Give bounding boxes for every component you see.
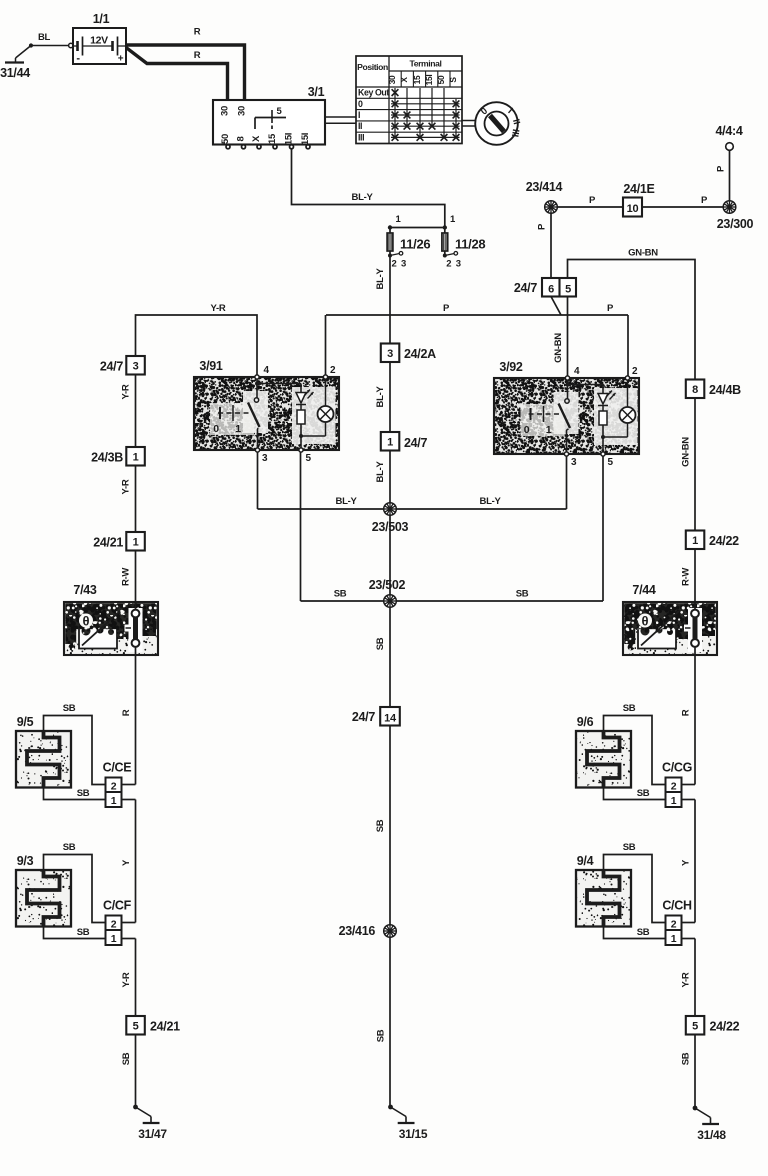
- svg-text:3: 3: [571, 457, 577, 468]
- svg-text:C/CG: C/CG: [662, 761, 692, 775]
- svg-text:2: 2: [392, 259, 397, 270]
- svg-text:SB: SB: [376, 1029, 387, 1042]
- svg-text:BL-Y: BL-Y: [336, 496, 358, 507]
- svg-text:SB: SB: [334, 589, 347, 600]
- svg-text:X: X: [251, 135, 262, 142]
- svg-text:SB: SB: [77, 927, 90, 938]
- svg-text:1: 1: [111, 933, 117, 945]
- svg-text:15: 15: [267, 133, 278, 144]
- svg-text:R: R: [121, 709, 132, 716]
- svg-text:Y-R: Y-R: [121, 384, 132, 399]
- svg-text:2: 2: [671, 780, 677, 792]
- svg-text:P: P: [716, 165, 727, 172]
- svg-text:5: 5: [306, 453, 312, 464]
- svg-text:S: S: [448, 77, 458, 83]
- svg-text:50: 50: [436, 75, 446, 84]
- svg-text:30: 30: [220, 106, 231, 116]
- svg-text:1: 1: [111, 795, 117, 807]
- svg-text:30: 30: [237, 106, 248, 116]
- svg-text:23/414: 23/414: [526, 180, 563, 194]
- svg-text:Y-R: Y-R: [121, 479, 132, 494]
- svg-text:14: 14: [384, 713, 397, 725]
- svg-text:24/1E: 24/1E: [623, 182, 654, 196]
- svg-text:24/7: 24/7: [404, 436, 427, 450]
- svg-text:24/7: 24/7: [100, 360, 123, 374]
- svg-text:2: 2: [671, 918, 677, 930]
- svg-text:24/7: 24/7: [352, 710, 375, 724]
- svg-text:9/4: 9/4: [577, 854, 594, 868]
- svg-text:15I: 15I: [424, 75, 434, 86]
- svg-text:GN-BN: GN-BN: [553, 333, 564, 363]
- svg-text:SB: SB: [623, 703, 636, 714]
- svg-text:GN-BN: GN-BN: [681, 437, 692, 467]
- svg-text:SB: SB: [63, 842, 76, 853]
- svg-text:Y-R: Y-R: [211, 303, 226, 314]
- svg-text:BL-Y: BL-Y: [375, 386, 386, 408]
- svg-text:23/416: 23/416: [339, 924, 376, 938]
- svg-text:P: P: [589, 195, 596, 206]
- svg-text:15I: 15I: [284, 133, 295, 145]
- svg-text:1: 1: [671, 933, 677, 945]
- svg-text:θ: θ: [82, 614, 89, 629]
- svg-text:Y: Y: [681, 859, 692, 866]
- svg-text:II: II: [358, 121, 362, 131]
- svg-text:C/CF: C/CF: [103, 899, 132, 913]
- svg-text:24/2A: 24/2A: [404, 347, 436, 361]
- svg-text:R-W: R-W: [121, 568, 132, 586]
- svg-text:9/3: 9/3: [17, 854, 34, 868]
- svg-text:3/1: 3/1: [308, 85, 325, 99]
- svg-text:2: 2: [330, 365, 336, 376]
- svg-text:0: 0: [213, 423, 219, 435]
- svg-text:3: 3: [262, 453, 268, 464]
- svg-text:1: 1: [133, 451, 139, 463]
- svg-text:3: 3: [401, 259, 406, 270]
- svg-text:2: 2: [111, 780, 117, 792]
- svg-text:15: 15: [412, 75, 422, 84]
- svg-text:BL-Y: BL-Y: [375, 268, 386, 290]
- svg-text:1: 1: [387, 436, 393, 448]
- svg-text:P: P: [607, 303, 614, 314]
- svg-text:2: 2: [632, 366, 638, 377]
- svg-text:9/5: 9/5: [17, 715, 34, 729]
- svg-text:24/3B: 24/3B: [91, 451, 123, 465]
- svg-text:7/44: 7/44: [632, 583, 655, 597]
- svg-text:6: 6: [548, 284, 554, 296]
- svg-text:BL-Y: BL-Y: [352, 192, 374, 203]
- svg-text:BL-Y: BL-Y: [375, 461, 386, 483]
- svg-text:4: 4: [264, 365, 270, 376]
- svg-text:3/92: 3/92: [499, 360, 522, 374]
- svg-text:R: R: [194, 50, 201, 61]
- svg-text:3/91: 3/91: [199, 359, 222, 373]
- svg-text:BL: BL: [38, 32, 51, 43]
- svg-text:P: P: [701, 195, 708, 206]
- svg-text:5: 5: [692, 1020, 698, 1032]
- svg-text:θ: θ: [641, 614, 648, 629]
- svg-text:0: 0: [524, 424, 530, 436]
- svg-text:Position: Position: [357, 62, 388, 72]
- svg-text:3: 3: [133, 360, 139, 372]
- svg-text:+: +: [118, 54, 124, 65]
- svg-text:Terminal: Terminal: [410, 59, 442, 69]
- svg-text:1: 1: [133, 536, 139, 548]
- svg-text:4/4:4: 4/4:4: [716, 124, 743, 138]
- svg-text:31/48: 31/48: [697, 1128, 726, 1142]
- svg-text:24/7: 24/7: [514, 281, 537, 295]
- svg-text:SB: SB: [681, 1052, 692, 1065]
- svg-text:11/28: 11/28: [455, 237, 485, 252]
- svg-text:24/21: 24/21: [93, 536, 123, 550]
- svg-text:50: 50: [220, 134, 231, 144]
- svg-text:SB: SB: [63, 703, 76, 714]
- svg-text:11/26: 11/26: [400, 237, 430, 252]
- svg-text:R: R: [194, 27, 201, 38]
- svg-text:23/300: 23/300: [717, 217, 754, 231]
- svg-text:III: III: [358, 133, 364, 143]
- svg-text:X: X: [399, 77, 409, 83]
- svg-text:3: 3: [456, 259, 461, 270]
- svg-text:10: 10: [627, 203, 639, 215]
- svg-text:8: 8: [692, 384, 698, 396]
- svg-text:1: 1: [671, 795, 677, 807]
- svg-text:24/22: 24/22: [709, 534, 739, 548]
- svg-text:Y-R: Y-R: [681, 972, 692, 987]
- svg-text:9/6: 9/6: [577, 715, 594, 729]
- svg-text:Y: Y: [121, 859, 132, 866]
- svg-text:SB: SB: [637, 788, 650, 799]
- svg-text:SB: SB: [623, 842, 636, 853]
- svg-text:2: 2: [111, 918, 117, 930]
- svg-text:BL-Y: BL-Y: [480, 496, 502, 507]
- svg-text:C/CH: C/CH: [662, 899, 692, 913]
- svg-text:R: R: [681, 709, 692, 716]
- svg-text:SB: SB: [637, 927, 650, 938]
- svg-text:24/4B: 24/4B: [709, 383, 741, 397]
- svg-text:C/CE: C/CE: [103, 761, 132, 775]
- svg-text:1: 1: [546, 424, 552, 436]
- svg-text:12V: 12V: [90, 35, 108, 47]
- svg-text:5: 5: [608, 457, 614, 468]
- svg-text:SB: SB: [121, 1052, 132, 1065]
- svg-text:3: 3: [387, 348, 393, 360]
- svg-text:31/47: 31/47: [138, 1127, 167, 1141]
- svg-text:1: 1: [692, 535, 698, 547]
- svg-text:31/44: 31/44: [0, 66, 30, 80]
- svg-text:0: 0: [358, 99, 363, 109]
- svg-text:31/15: 31/15: [399, 1127, 428, 1141]
- svg-text:1: 1: [235, 423, 241, 435]
- svg-text:24/22: 24/22: [710, 1020, 740, 1034]
- svg-text:23/502: 23/502: [369, 578, 406, 592]
- svg-text:5: 5: [565, 284, 571, 296]
- svg-text:Y-R: Y-R: [121, 972, 132, 987]
- svg-text:R-W: R-W: [681, 568, 692, 586]
- svg-text:2: 2: [446, 259, 451, 270]
- svg-text:SB: SB: [516, 589, 529, 600]
- svg-text:7/43: 7/43: [73, 583, 96, 597]
- svg-text:1/1: 1/1: [93, 12, 110, 26]
- svg-text:P: P: [443, 303, 450, 314]
- svg-text:P: P: [537, 223, 548, 230]
- svg-text:SB: SB: [375, 637, 386, 650]
- svg-text:SB: SB: [77, 788, 90, 799]
- svg-text:4: 4: [574, 366, 580, 377]
- svg-text:30: 30: [387, 75, 397, 84]
- svg-text:15I: 15I: [300, 133, 311, 145]
- svg-text:8: 8: [236, 136, 247, 141]
- svg-text:Key Out: Key Out: [358, 88, 389, 98]
- svg-text:GN-BN: GN-BN: [628, 248, 658, 259]
- svg-text:5: 5: [133, 1020, 139, 1032]
- svg-text:I: I: [358, 110, 360, 120]
- svg-text:SB: SB: [375, 819, 386, 832]
- svg-text:24/21: 24/21: [150, 1020, 180, 1034]
